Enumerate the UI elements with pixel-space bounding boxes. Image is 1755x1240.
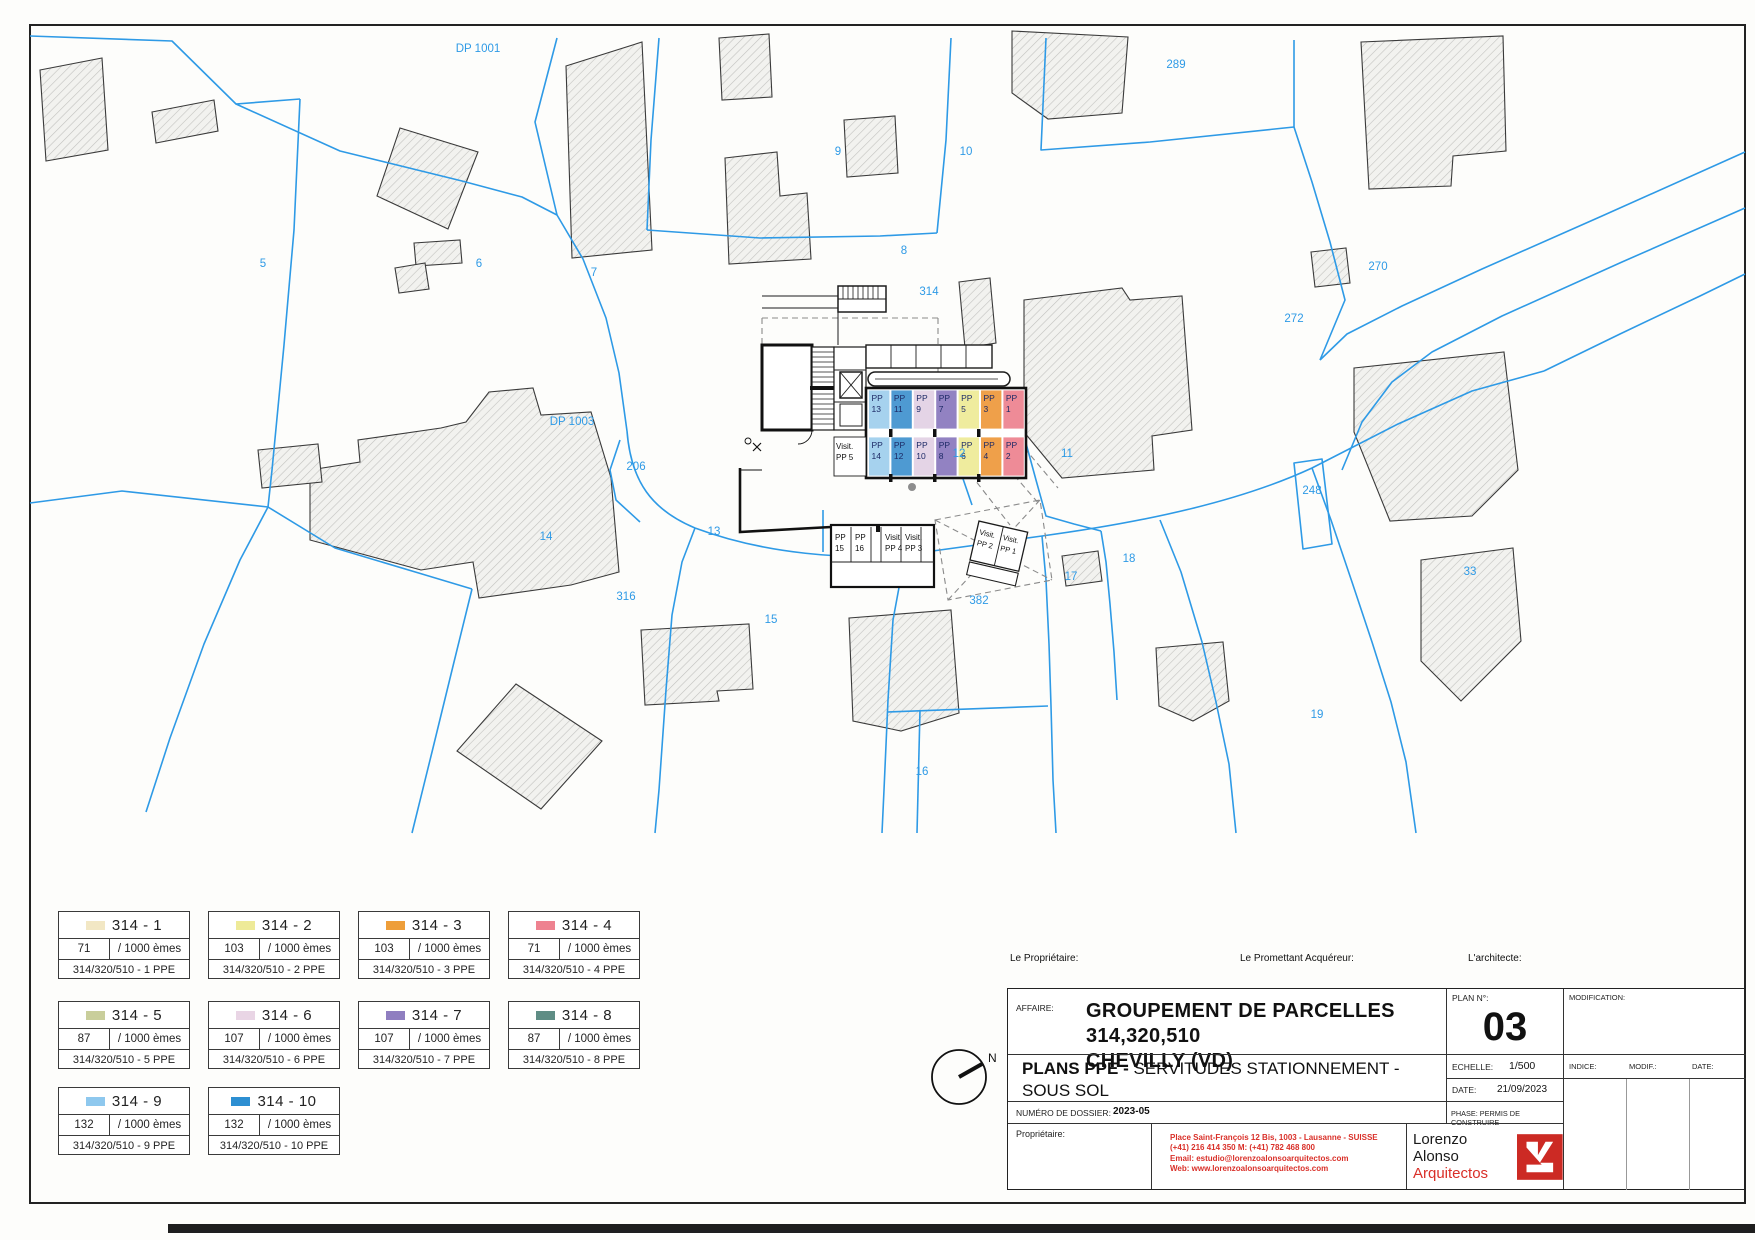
address-line2: (+41) 216 414 350 M: (+41) 782 468 800	[1170, 1143, 1406, 1153]
lower-stall-label: 15	[835, 544, 844, 553]
stall-number: 4	[984, 451, 989, 461]
parcel-label: 382	[969, 595, 988, 607]
firm-name: Lorenzo Alonso	[1413, 1131, 1511, 1166]
north-label: N	[988, 1051, 997, 1065]
parcel-label: 206	[626, 461, 645, 473]
legend-ppe-ref: 314/320/510 - 8 PPE	[509, 1050, 639, 1069]
visitor-stall-label: PP 5	[836, 453, 854, 462]
legend-title: 314 - 3	[359, 912, 489, 939]
lower-stall-label: Visit.	[885, 533, 902, 542]
address-line4: Web: www.lorenzoalonsoarquitectos.com	[1170, 1164, 1406, 1174]
parcel-label: 16	[916, 766, 929, 778]
north-arrow: N	[926, 1044, 1006, 1114]
legend-share: 87	[59, 1029, 110, 1049]
stall-number: 1	[1006, 404, 1011, 414]
dossier-cell: NUMÉRO DE DOSSIER: 2023-05	[1008, 1101, 1446, 1123]
date-value: 21/09/2023	[1497, 1084, 1547, 1095]
legend-denominator: / 1000 èmes	[410, 939, 489, 959]
lower-stall-label: 16	[855, 544, 864, 553]
legend-denominator: / 1000 èmes	[410, 1029, 489, 1049]
lower-stall-label: Visit.	[905, 533, 922, 542]
apron	[740, 430, 831, 532]
firm-name2: Arquitectos	[1413, 1165, 1511, 1182]
stall-number: 11	[894, 404, 903, 414]
legend-title: 314 - 1	[59, 912, 189, 939]
lower-stall-label: PP 3	[905, 544, 923, 553]
legend-item: 314 - 9132/ 1000 èmes314/320/510 - 9 PPE	[58, 1087, 190, 1155]
legend-lot-name: 314 - 10	[257, 1093, 316, 1110]
legend-denominator: / 1000 èmes	[260, 1115, 339, 1135]
legend-ppe-ref: 314/320/510 - 3 PPE	[359, 960, 489, 979]
legend-share: 132	[209, 1115, 260, 1135]
legend-title: 314 - 10	[209, 1088, 339, 1115]
legend-denominator: / 1000 èmes	[560, 1029, 639, 1049]
legend-denominator: / 1000 èmes	[560, 939, 639, 959]
stall-number: 14	[872, 451, 882, 461]
legend-denominator: / 1000 èmes	[110, 939, 189, 959]
stall-label: PP	[872, 393, 884, 403]
plan-number-cell: PLAN N°: 03	[1446, 989, 1563, 1054]
legend-color-swatch	[86, 1011, 105, 1020]
underground-garage-plan: PP13PP11PP9PP7PP5PP3PP1PP14PP12PP10PP8PP…	[740, 286, 1058, 600]
legend-color-swatch	[231, 1097, 250, 1106]
legend-ppe-ref: 314/320/510 - 2 PPE	[209, 960, 339, 979]
parcel-label: 316	[616, 591, 635, 603]
parcel-label: 8	[901, 245, 907, 257]
legend-lot-name: 314 - 7	[412, 1007, 462, 1024]
legend-color-swatch	[386, 921, 405, 930]
affaire-line1: GROUPEMENT DE PARCELLES 314,320,510	[1086, 999, 1440, 1049]
legend-item: 314 - 471/ 1000 èmes314/320/510 - 4 PPE	[508, 911, 640, 979]
stall-label: PP	[872, 440, 884, 450]
stall-number: 2	[1006, 451, 1011, 461]
legend-color-swatch	[536, 921, 555, 930]
lower-stall-label: PP	[835, 533, 846, 542]
legend-color-swatch	[236, 921, 255, 930]
legend-ppe-ref: 314/320/510 - 1 PPE	[59, 960, 189, 979]
stall-label: PP	[916, 393, 928, 403]
architect-label: L'architecte:	[1468, 953, 1522, 964]
parcel-label: 19	[1311, 709, 1324, 721]
modification-cell: MODIFICATION:	[1563, 989, 1746, 1054]
stall-label: PP	[916, 440, 928, 450]
plans-line2: SOUS SOL	[1022, 1080, 1440, 1102]
plan-no-value: 03	[1447, 1007, 1563, 1047]
parcel-label: 10	[960, 146, 973, 158]
dossier-label: NUMÉRO DE DOSSIER:	[1016, 1108, 1111, 1118]
date-cell: DATE: 21/09/2023	[1446, 1078, 1563, 1101]
legend-share: 107	[209, 1029, 260, 1049]
legend-item: 314 - 3103/ 1000 èmes314/320/510 - 3 PPE	[358, 911, 490, 979]
drawing-sheet: PP13PP11PP9PP7PP5PP3PP1PP14PP12PP10PP8PP…	[0, 0, 1755, 1240]
firm-cell: Lorenzo Alonso Arquitectos	[1406, 1123, 1563, 1189]
legend-item: 314 - 887/ 1000 èmes314/320/510 - 8 PPE	[508, 1001, 640, 1069]
legend-ppe-ref: 314/320/510 - 9 PPE	[59, 1136, 189, 1155]
plan-no-label: PLAN N°:	[1452, 993, 1488, 1003]
parcel-label: 13	[708, 526, 721, 538]
legend-color-swatch	[386, 1011, 405, 1020]
legend-title: 314 - 4	[509, 912, 639, 939]
parcel-label: 12	[953, 448, 966, 460]
owner-label: Le Propriétaire:	[1010, 953, 1078, 964]
stall-number: 5	[961, 404, 966, 414]
legend-denominator: / 1000 èmes	[260, 939, 339, 959]
legend-share: 87	[509, 1029, 560, 1049]
legend-share: 103	[359, 939, 410, 959]
legend-item: 314 - 10132/ 1000 èmes314/320/510 - 10 P…	[208, 1087, 340, 1155]
legend-lot-name: 314 - 3	[412, 917, 462, 934]
legend-denominator: / 1000 èmes	[260, 1029, 339, 1049]
parcel-label: 270	[1368, 261, 1387, 273]
legend-share: 71	[59, 939, 110, 959]
phase-cell: PHASE: PERMIS DE CONSTRUIRE	[1446, 1101, 1563, 1123]
stall-label: PP	[1006, 393, 1018, 403]
parcel-label: 6	[476, 258, 482, 270]
stall-label: PP	[1006, 440, 1018, 450]
legend-lot-name: 314 - 6	[262, 1007, 312, 1024]
parcel-label: 5	[260, 258, 266, 270]
affaire-label: AFFAIRE:	[1016, 1003, 1054, 1013]
parcel-label: 15	[765, 614, 778, 626]
title-block: AFFAIRE: GROUPEMENT DE PARCELLES 314,320…	[1007, 988, 1745, 1190]
legend-share: 71	[509, 939, 560, 959]
parcel-label: 9	[835, 146, 841, 158]
legend-ppe-ref: 314/320/510 - 5 PPE	[59, 1050, 189, 1069]
stall-label: PP	[984, 393, 996, 403]
legend-ppe-ref: 314/320/510 - 10 PPE	[209, 1136, 339, 1155]
scale-label: ECHELLE:	[1452, 1062, 1493, 1072]
legend-title: 314 - 5	[59, 1002, 189, 1029]
indice-label: INDICE:	[1569, 1062, 1597, 1071]
address-line3: Email: estudio@lorenzoalonsoarquitectos.…	[1170, 1154, 1406, 1164]
parcel-label: 17	[1065, 571, 1078, 583]
scan-edge-bar	[168, 1224, 1755, 1233]
legend-lot-name: 314 - 4	[562, 917, 612, 934]
stall-number: 7	[939, 404, 944, 414]
legend-lot-name: 314 - 2	[262, 917, 312, 934]
legend-item: 314 - 171/ 1000 èmes314/320/510 - 1 PPE	[58, 911, 190, 979]
angled-visitor-stalls: Visit.PP 2Visit.PP 1	[967, 521, 1028, 586]
legend-title: 314 - 7	[359, 1002, 489, 1029]
parcel-label: DP 1001	[456, 43, 501, 55]
legend-color-swatch	[236, 1011, 255, 1020]
legend-ppe-ref: 314/320/510 - 4 PPE	[509, 960, 639, 979]
legend-title: 314 - 8	[509, 1002, 639, 1029]
address-line1: Place Saint-François 12 Bis, 1003 - Laus…	[1170, 1133, 1406, 1143]
legend-item: 314 - 2103/ 1000 èmes314/320/510 - 2 PPE	[208, 911, 340, 979]
stall-label: PP	[894, 440, 906, 450]
date-col-label: DATE:	[1692, 1062, 1714, 1071]
stall-label: PP	[984, 440, 996, 450]
legend-lot-name: 314 - 8	[562, 1007, 612, 1024]
address-cell: Place Saint-François 12 Bis, 1003 - Laus…	[1151, 1123, 1406, 1189]
plans-rest: SERVITUDES STATIONNEMENT -	[1129, 1059, 1400, 1078]
legend-color-swatch	[86, 921, 105, 930]
stair-top	[762, 286, 886, 345]
parcel-label: 272	[1284, 313, 1303, 325]
lower-stall-label: PP 4	[885, 544, 903, 553]
parcel-label: 18	[1123, 553, 1136, 565]
stall-number: 12	[894, 451, 904, 461]
stall-label: PP	[939, 393, 951, 403]
affaire-cell: AFFAIRE: GROUPEMENT DE PARCELLES 314,320…	[1008, 989, 1446, 1054]
modif-col-label: MODIF.:	[1629, 1062, 1657, 1071]
parcel-label: 11	[1061, 448, 1073, 460]
parcel-label: DP 1003	[550, 416, 595, 428]
visitor-stall-label: Visit.	[836, 442, 853, 451]
parcel-label: 314	[919, 286, 939, 298]
legend-share: 103	[209, 939, 260, 959]
legend-color-swatch	[536, 1011, 555, 1020]
stall-label: PP	[894, 393, 906, 403]
legend-lot-name: 314 - 1	[112, 917, 162, 934]
stall-label: PP	[961, 393, 973, 403]
stall-number: 3	[984, 404, 989, 414]
legend-color-swatch	[86, 1097, 105, 1106]
buyer-label: Le Promettant Acquéreur:	[1240, 953, 1354, 964]
stall-number: 10	[916, 451, 926, 461]
core-rooms	[762, 345, 866, 430]
proprietaire-label: Propriétaire:	[1016, 1129, 1065, 1139]
cellars-and-ramp	[866, 345, 1010, 386]
stall-label: PP	[939, 440, 951, 450]
legend-title: 314 - 6	[209, 1002, 339, 1029]
legend-lot-name: 314 - 5	[112, 1007, 162, 1024]
firm-logo	[1517, 1133, 1563, 1181]
stall-number: 8	[939, 451, 944, 461]
stall-number: 13	[872, 404, 882, 414]
legend-title: 314 - 9	[59, 1088, 189, 1115]
legend-denominator: / 1000 èmes	[110, 1115, 189, 1135]
plans-bold: PLANS PPE -	[1022, 1059, 1129, 1078]
indice-empty-cell	[1563, 1078, 1746, 1189]
legend-item: 314 - 587/ 1000 èmes314/320/510 - 5 PPE	[58, 1001, 190, 1069]
parcel-label: 289	[1166, 59, 1185, 71]
scale-cell: ECHELLE: 1/500	[1446, 1054, 1563, 1078]
owner-cell: Propriétaire:	[1008, 1123, 1151, 1189]
legend-item: 314 - 6107/ 1000 èmes314/320/510 - 6 PPE	[208, 1001, 340, 1069]
legend-ppe-ref: 314/320/510 - 7 PPE	[359, 1050, 489, 1069]
legend-share: 132	[59, 1115, 110, 1135]
date-label: DATE:	[1452, 1085, 1476, 1095]
legend-lot-name: 314 - 9	[112, 1093, 162, 1110]
lower-stall-label: PP	[855, 533, 866, 542]
legend-share: 107	[359, 1029, 410, 1049]
plans-cell: PLANS PPE - SERVITUDES STATIONNEMENT - S…	[1008, 1054, 1446, 1101]
dossier-value: 2023-05	[1113, 1106, 1150, 1117]
legend-title: 314 - 2	[209, 912, 339, 939]
parcel-label: 248	[1302, 485, 1321, 497]
phase-label: PHASE:	[1451, 1109, 1478, 1118]
legend-ppe-ref: 314/320/510 - 6 PPE	[209, 1050, 339, 1069]
parcel-label: 33	[1464, 566, 1477, 578]
legend-item: 314 - 7107/ 1000 èmes314/320/510 - 7 PPE	[358, 1001, 490, 1069]
indice-header-cell: INDICE: MODIF.: DATE:	[1563, 1054, 1746, 1078]
stall-number: 9	[916, 404, 921, 414]
modification-label: MODIFICATION:	[1569, 993, 1625, 1002]
scale-value: 1/500	[1509, 1060, 1535, 1072]
parcel-label: 14	[540, 531, 553, 543]
parcel-label: 7	[591, 267, 597, 279]
legend-denominator: / 1000 èmes	[110, 1029, 189, 1049]
